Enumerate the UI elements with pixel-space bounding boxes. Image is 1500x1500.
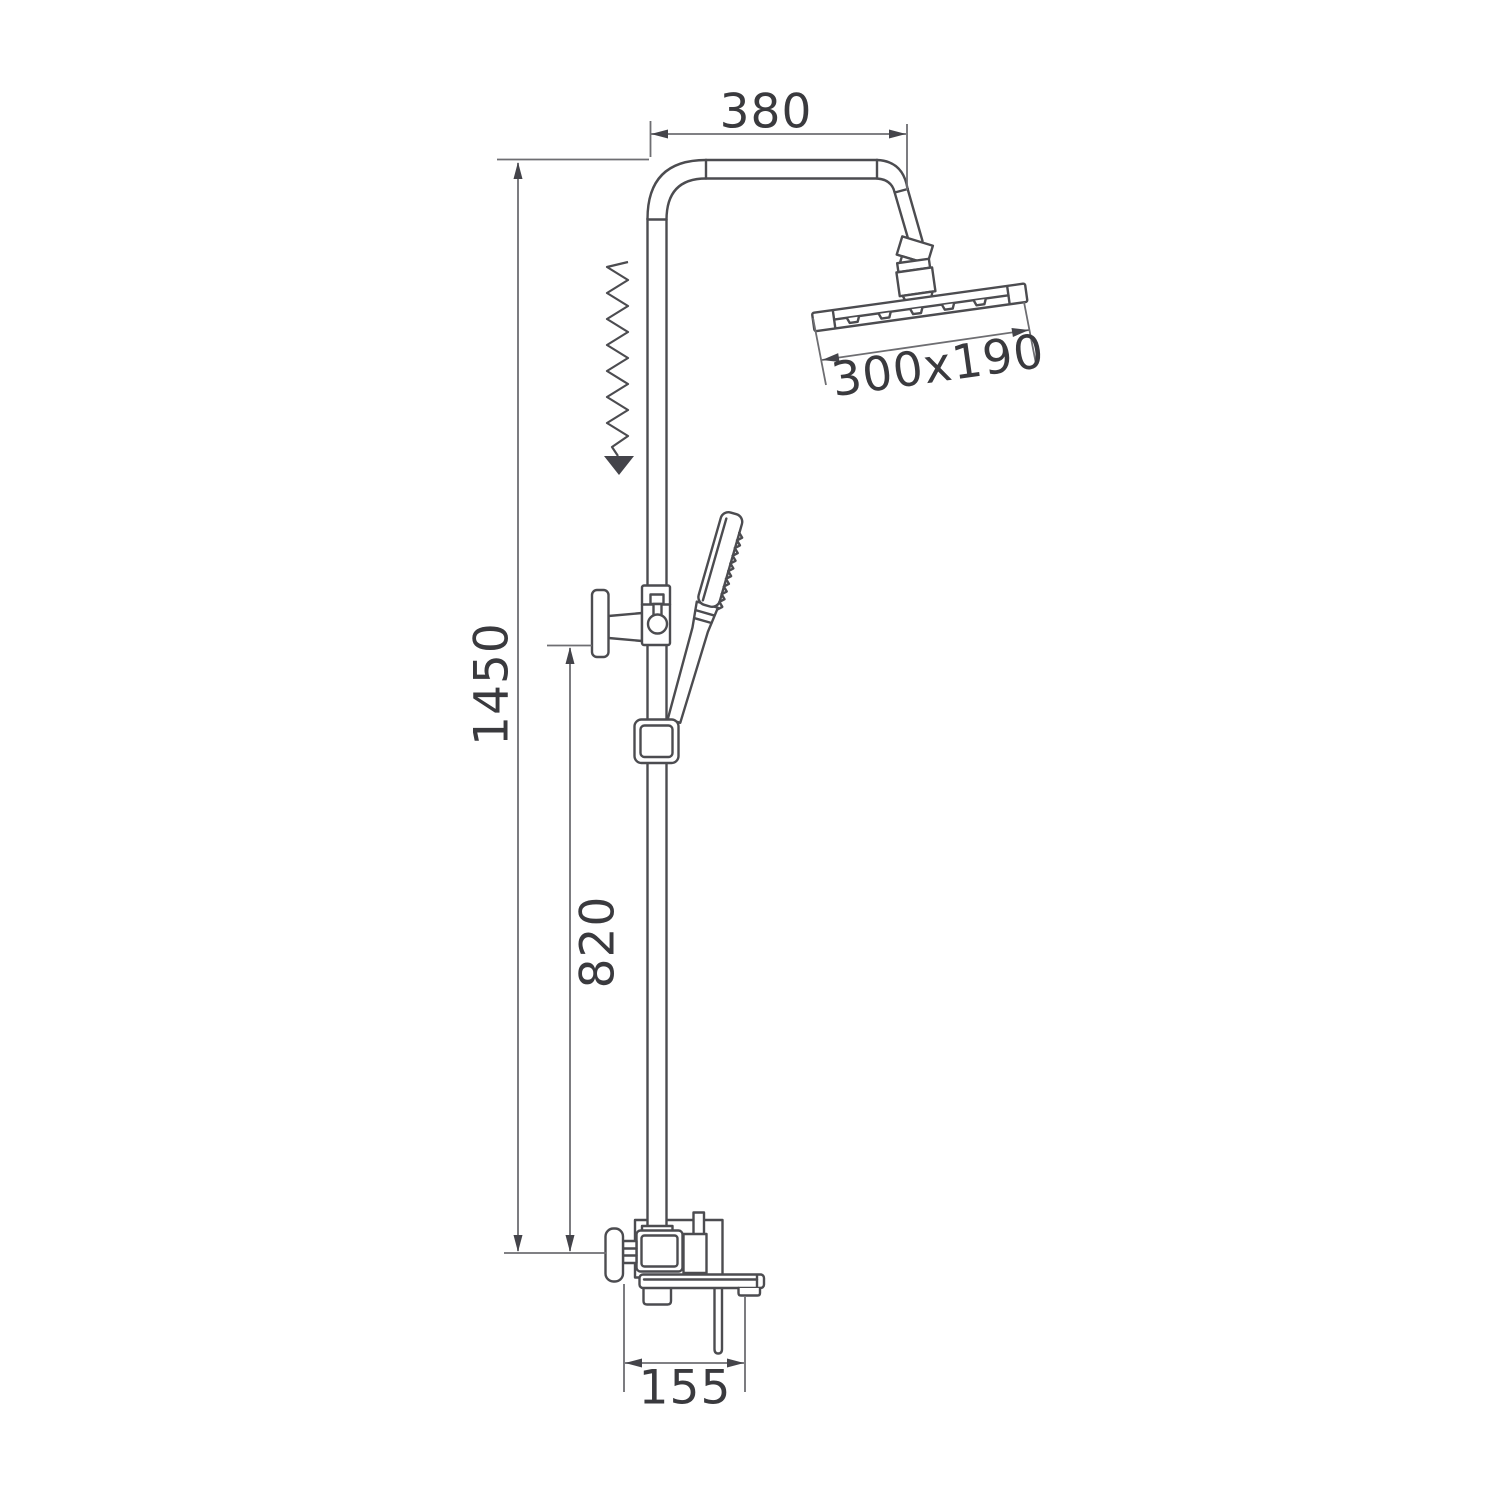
- arrowhead: [514, 1235, 523, 1252]
- dimension-labels: 380 1450 820 155 300x190: [465, 85, 1048, 1416]
- gooseneck-inner-bend-left: [667, 179, 707, 221]
- arrowhead: [566, 647, 575, 664]
- height-adjust-indicator: [604, 262, 634, 475]
- clamp-slot-top: [651, 595, 664, 605]
- dimension-arrowheads: [514, 130, 1030, 1368]
- arm-outer-edge: [908, 189, 923, 242]
- arrowhead: [566, 1235, 575, 1252]
- arm-seam: [895, 189, 908, 193]
- gooseneck-outer-bend-right: [877, 160, 908, 189]
- mixer-lever-stub: [694, 1213, 705, 1236]
- shower-column-technical-drawing: 380 1450 820 155 300x190: [0, 0, 1500, 1500]
- column-height-label: 820: [571, 896, 626, 989]
- hose-rod: [715, 1288, 723, 1354]
- arrowhead: [889, 130, 906, 139]
- clamp-pivot-circle: [648, 615, 667, 634]
- bracket-inner: [641, 726, 673, 758]
- mixer-knob-shaft: [623, 1241, 637, 1263]
- mixer-knob-disc: [606, 1229, 624, 1282]
- hand-shower: [663, 510, 748, 725]
- total-height-label: 1450: [465, 622, 520, 746]
- technical-drawing-page: 380 1450 820 155 300x190: [0, 0, 1500, 1500]
- mixer-under-connector: [644, 1288, 672, 1305]
- arrowhead: [651, 130, 668, 139]
- arm-width-label: 380: [720, 85, 813, 140]
- arrowhead: [514, 162, 523, 179]
- spout-length-label: 155: [639, 1361, 732, 1416]
- clamp-knob-disc: [592, 590, 609, 657]
- clamp-shaft: [609, 613, 643, 641]
- zigzag-spring-line: [607, 262, 628, 456]
- down-arrow-solid: [604, 456, 634, 475]
- spout-bar: [640, 1275, 765, 1289]
- gooseneck-inner-bend-right: [877, 179, 895, 193]
- hand-shower-handle: [663, 602, 717, 724]
- slide-bracket: [635, 720, 679, 764]
- spout-outlet: [739, 1288, 761, 1296]
- mixer-lever-base: [684, 1234, 707, 1273]
- head-size-label: 300x190: [828, 324, 1048, 408]
